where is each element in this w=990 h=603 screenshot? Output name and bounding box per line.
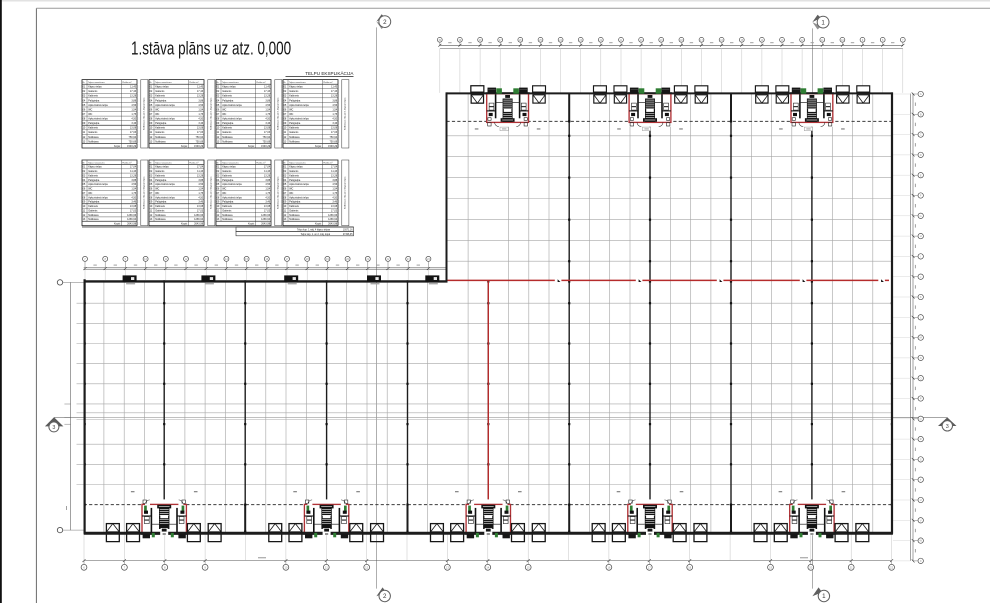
svg-text:Palīgtelpa: Palīgtelpa [222, 122, 234, 125]
svg-text:Kabinets: Kabinets [88, 205, 98, 208]
svg-text:WC: WC [222, 108, 226, 111]
svg-text:C: C [920, 133, 922, 137]
svg-text:Noliktava: Noliktava [222, 140, 233, 143]
svg-text:1,54: 1,54 [131, 188, 136, 191]
svg-text:Kabinets: Kabinets [88, 127, 98, 130]
svg-text:WC: WC [289, 108, 293, 111]
svg-text:Platība m²: Platība m² [122, 161, 131, 164]
svg-text:Kabinets: Kabinets [155, 127, 165, 130]
svg-text:750,64: 750,64 [129, 136, 137, 139]
svg-text:4,50: 4,50 [131, 118, 136, 121]
svg-text:4,56: 4,56 [198, 104, 203, 107]
svg-text:11,43: 11,43 [331, 170, 338, 173]
svg-text:3,88: 3,88 [198, 179, 203, 182]
svg-text:750,69: 750,69 [330, 140, 338, 143]
svg-text:Platība m²: Platība m² [122, 81, 131, 84]
svg-text:Noliktava: Noliktava [289, 218, 300, 221]
svg-text:G: G [920, 214, 922, 218]
svg-text:Noliktava: Noliktava [88, 136, 99, 139]
svg-text:K: K [920, 295, 922, 299]
svg-text:Kabinets: Kabinets [222, 95, 232, 98]
svg-text:Nr: Nr [83, 82, 85, 84]
svg-text:Nr: Nr [284, 162, 286, 164]
svg-text:Noliktava: Noliktava [289, 214, 300, 217]
svg-text:Palīgtelpa: Palīgtelpa [155, 179, 167, 182]
svg-text:Telpas nosaukums: Telpas nosaukums [289, 82, 306, 84]
svg-text:Telpas nosaukums: Telpas nosaukums [155, 162, 172, 164]
svg-text:Apkurināmā telpa: Apkurināmā telpa [289, 104, 309, 107]
svg-text:P: P [920, 397, 922, 401]
svg-text:Kopā:: Kopā: [315, 145, 322, 148]
svg-text:Noliktava: Noliktava [155, 214, 166, 217]
svg-text:17,04: 17,04 [264, 166, 271, 169]
svg-text:4,50: 4,50 [332, 196, 337, 199]
svg-text:4,56: 4,56 [265, 183, 270, 186]
svg-text:11,43: 11,43 [197, 170, 204, 173]
svg-text:17,43: 17,43 [130, 90, 137, 93]
svg-text:Palīgtelpa: Palīgtelpa [88, 99, 100, 102]
svg-text:1,54: 1,54 [198, 108, 203, 111]
svg-text:1266,66: 1266,66 [328, 214, 338, 217]
svg-text:Gaitenis: Gaitenis [155, 210, 165, 213]
svg-text:15: 15 [527, 565, 531, 569]
svg-text:Gaitenis: Gaitenis [155, 131, 165, 134]
svg-text:Noliktava: Noliktava [222, 218, 233, 221]
svg-text:17: 17 [648, 565, 652, 569]
svg-text:4,50: 4,50 [131, 196, 136, 199]
svg-text:E: E [920, 173, 922, 177]
svg-text:Telpas nosaukums: Telpas nosaukums [155, 82, 172, 84]
svg-text:Apkurināmā telpa: Apkurināmā telpa [155, 118, 175, 121]
svg-text:Gaitenis: Gaitenis [88, 170, 98, 173]
svg-text:17,03: 17,03 [264, 210, 271, 213]
svg-text:WC: WC [155, 108, 159, 111]
svg-text:1,75: 1,75 [198, 192, 203, 195]
svg-text:3,46: 3,46 [265, 122, 270, 125]
svg-text:Apkurināmā telpa: Apkurināmā telpa [289, 196, 309, 199]
svg-text:Palīgtelpa: Palīgtelpa [155, 201, 167, 204]
svg-text:Palīgtelpa: Palīgtelpa [155, 122, 167, 125]
svg-text:Platība m²: Platība m² [256, 161, 265, 164]
svg-text:3,46: 3,46 [198, 201, 203, 204]
svg-text:17,03: 17,03 [197, 210, 204, 213]
svg-text:13,28: 13,28 [197, 95, 204, 98]
svg-text:13,28: 13,28 [197, 174, 204, 177]
svg-text:Kabinets: Kabinets [88, 95, 98, 98]
svg-text:3,46: 3,46 [131, 122, 136, 125]
svg-text:S: S [920, 458, 922, 462]
svg-text:Nr: Nr [150, 82, 152, 84]
svg-text:Apkurināmā telpa: Apkurināmā telpa [155, 104, 175, 107]
svg-text:Gaitenis: Gaitenis [289, 210, 299, 213]
svg-text:Kopā:: Kopā: [181, 145, 188, 148]
svg-text:1,75: 1,75 [198, 113, 203, 116]
svg-text:X: X [920, 559, 922, 563]
svg-text:2: 2 [383, 19, 387, 26]
svg-text:A: A [920, 92, 922, 96]
svg-text:Apkurināmā telpa: Apkurināmā telpa [88, 118, 108, 121]
svg-text:17,03: 17,03 [331, 210, 338, 213]
svg-text:13,28: 13,28 [264, 95, 271, 98]
svg-text:Apkurināmā telpa: Apkurināmā telpa [289, 183, 309, 186]
svg-text:3,46: 3,46 [332, 122, 337, 125]
svg-text:750,64: 750,64 [330, 136, 338, 139]
svg-text:3,46: 3,46 [131, 201, 136, 204]
svg-text:11,45: 11,45 [331, 86, 338, 89]
svg-text:H: H [920, 234, 922, 238]
svg-text:Kāpņu telpa: Kāpņu telpa [289, 86, 303, 89]
svg-text:13,08: 13,08 [264, 127, 271, 130]
svg-text:Apkurināmā telpa: Apkurināmā telpa [289, 118, 309, 121]
svg-text:13,08: 13,08 [197, 205, 204, 208]
svg-text:Kāpņu telpa: Kāpņu telpa [222, 86, 236, 89]
svg-text:Gaitenis: Gaitenis [289, 131, 299, 134]
svg-text:V: V [920, 518, 922, 522]
svg-text:14: 14 [486, 565, 490, 569]
svg-text:1593,29: 1593,29 [194, 145, 204, 148]
svg-text:Telpas nosaukums: Telpas nosaukums [222, 82, 239, 84]
svg-text:Gaitenis: Gaitenis [88, 210, 98, 213]
svg-text:Kopā:: Kopā: [114, 223, 121, 226]
svg-text:3,88: 3,88 [131, 99, 136, 102]
svg-text:Kopā:: Kopā: [181, 223, 188, 226]
svg-text:Gaitenis: Gaitenis [222, 210, 232, 213]
svg-text:1,75: 1,75 [265, 113, 270, 116]
svg-text:11,45: 11,45 [264, 86, 271, 89]
svg-text:17,04: 17,04 [130, 166, 137, 169]
svg-text:Kabinets: Kabinets [222, 205, 232, 208]
svg-text:16: 16 [607, 565, 611, 569]
svg-text:17,43: 17,43 [264, 90, 271, 93]
svg-text:Noliktavas ēka pie 1.kāpņu tel: Noliktavas ēka pie 1.kāpņu telpas [209, 97, 212, 130]
svg-text:WC: WC [289, 188, 293, 191]
svg-text:2: 2 [383, 593, 387, 600]
svg-text:19: 19 [769, 565, 773, 569]
svg-text:21: 21 [850, 565, 854, 569]
svg-text:1593,29: 1593,29 [127, 145, 137, 148]
svg-text:3: 3 [52, 425, 55, 431]
svg-text:13,08: 13,08 [331, 205, 338, 208]
svg-text:Noliktavas ēka pie 1.kāpņu tel: Noliktavas ēka pie 1.kāpņu telpas [343, 97, 346, 130]
svg-text:Noliktavas ēka pie 2.kāpņu tel: Noliktavas ēka pie 2.kāpņu telpas [343, 176, 346, 209]
svg-text:Kopā:: Kopā: [315, 223, 322, 226]
svg-text:Nr: Nr [217, 162, 219, 164]
svg-text:11,43: 11,43 [130, 170, 137, 173]
svg-text:1,54: 1,54 [332, 108, 337, 111]
svg-text:Apkurināmā telpa: Apkurināmā telpa [222, 104, 242, 107]
svg-text:Palīgtelpa: Palīgtelpa [88, 179, 100, 182]
svg-text:Noliktava: Noliktava [88, 214, 99, 217]
svg-text:4,56: 4,56 [198, 183, 203, 186]
svg-text:WC: WC [289, 192, 293, 195]
svg-text:4,56: 4,56 [131, 104, 136, 107]
svg-text:Noliktavas ēka pie 2.kāpņu tel: Noliktavas ēka pie 2.kāpņu telpas [209, 176, 212, 209]
svg-text:Noliktavas ēka pie 1.kāpņu tel: Noliktavas ēka pie 1.kāpņu telpas [276, 97, 279, 130]
svg-text:13,28: 13,28 [331, 95, 338, 98]
svg-text:Palīgtelpa: Palīgtelpa [88, 122, 100, 125]
svg-text:Kāpņu telpa: Kāpņu telpa [155, 86, 169, 89]
svg-text:Apkurināmā telpa: Apkurināmā telpa [222, 183, 242, 186]
svg-text:Gaitenis: Gaitenis [289, 90, 299, 93]
svg-text:Kabinets: Kabinets [155, 205, 165, 208]
svg-text:1593,29: 1593,29 [328, 145, 338, 148]
svg-text:Palīgtelpa: Palīgtelpa [289, 179, 301, 182]
svg-text:WC: WC [88, 108, 92, 111]
svg-text:1,75: 1,75 [131, 113, 136, 116]
svg-text:11,43: 11,43 [264, 170, 271, 173]
svg-text:22: 22 [890, 565, 894, 569]
svg-text:Nr: Nr [150, 162, 152, 164]
svg-text:2643,98: 2643,98 [127, 223, 137, 226]
svg-text:3,88: 3,88 [131, 179, 136, 182]
svg-text:Gaitenis: Gaitenis [289, 170, 299, 173]
svg-text:1: 1 [821, 19, 825, 26]
svg-text:17,43: 17,43 [331, 90, 338, 93]
svg-text:Gaitenis: Gaitenis [88, 131, 98, 134]
svg-text:1,75: 1,75 [265, 192, 270, 195]
svg-text:4,56: 4,56 [131, 183, 136, 186]
svg-text:D: D [920, 153, 922, 157]
svg-text:Kāpņu telpa: Kāpņu telpa [88, 166, 102, 169]
svg-text:13,08: 13,08 [331, 127, 338, 130]
svg-text:17,03: 17,03 [130, 210, 137, 213]
svg-text:3,88: 3,88 [265, 179, 270, 182]
svg-text:Kopā:: Kopā: [248, 223, 255, 226]
svg-text:Palīgtelpa: Palīgtelpa [289, 201, 301, 204]
svg-text:13,28: 13,28 [130, 174, 137, 177]
svg-text:4,56: 4,56 [332, 104, 337, 107]
svg-text:1266,64: 1266,64 [328, 218, 338, 221]
svg-text:3,88: 3,88 [332, 179, 337, 182]
svg-text:3: 3 [946, 424, 949, 430]
svg-text:Noliktavas ēka pie 1.kāpņu tel: Noliktavas ēka pie 1.kāpņu telpas [142, 97, 145, 130]
svg-text:1,75: 1,75 [332, 192, 337, 195]
svg-text:17,03: 17,03 [264, 131, 271, 134]
svg-text:11,45: 11,45 [197, 86, 204, 89]
svg-text:17,04: 17,04 [197, 166, 204, 169]
svg-text:Kabinets: Kabinets [222, 174, 232, 177]
svg-text:Gaitenis: Gaitenis [222, 170, 232, 173]
svg-text:1,54: 1,54 [265, 108, 270, 111]
svg-text:3,46: 3,46 [332, 201, 337, 204]
svg-text:1593,29: 1593,29 [261, 145, 271, 148]
svg-text:Apkurināmā telpa: Apkurināmā telpa [222, 196, 242, 199]
svg-text:U: U [920, 498, 922, 502]
svg-text:Kabinets: Kabinets [289, 95, 299, 98]
svg-text:17,03: 17,03 [331, 131, 338, 134]
svg-text:Apkurināmā telpa: Apkurināmā telpa [88, 183, 108, 186]
svg-text:1,54: 1,54 [198, 188, 203, 191]
svg-text:17,43: 17,43 [197, 90, 204, 93]
svg-text:Gaitenis: Gaitenis [222, 90, 232, 93]
svg-text:WC: WC [222, 192, 226, 195]
svg-text:Platība m²: Platība m² [189, 161, 198, 164]
svg-text:Kabinets: Kabinets [289, 205, 299, 208]
svg-text:Apkurināmā telpa: Apkurināmā telpa [155, 183, 175, 186]
svg-text:Palīgtelpa: Palīgtelpa [222, 179, 234, 182]
svg-text:WC: WC [222, 113, 226, 116]
svg-text:O: O [920, 376, 922, 380]
svg-text:1266,66: 1266,66 [261, 214, 271, 217]
svg-text:Noliktava: Noliktava [88, 140, 99, 143]
svg-text:N: N [920, 356, 922, 360]
svg-text:Q: Q [920, 417, 922, 421]
svg-text:1266,64: 1266,64 [194, 218, 204, 221]
svg-text:3,46: 3,46 [198, 122, 203, 125]
svg-text:Palīgtelpa: Palīgtelpa [222, 201, 234, 204]
svg-text:Telpas nosaukums: Telpas nosaukums [222, 162, 239, 164]
svg-text:Gaitenis: Gaitenis [88, 90, 98, 93]
svg-text:Palīgtelpa: Palīgtelpa [289, 122, 301, 125]
svg-text:Telpas nosaukums: Telpas nosaukums [88, 162, 105, 164]
svg-text:Palīgtelpa: Palīgtelpa [155, 99, 167, 102]
svg-text:1266,66: 1266,66 [127, 214, 137, 217]
svg-text:2643,98: 2643,98 [328, 223, 338, 226]
svg-text:Apkurināmā telpa: Apkurināmā telpa [155, 196, 175, 199]
svg-text:Noliktava: Noliktava [222, 136, 233, 139]
svg-text:18: 18 [688, 565, 692, 569]
svg-text:WC: WC [88, 192, 92, 195]
svg-text:Gaitenis: Gaitenis [155, 90, 165, 93]
svg-text:17,03: 17,03 [197, 131, 204, 134]
svg-text:Telpas nosaukums: Telpas nosaukums [289, 162, 306, 164]
svg-text:13,08: 13,08 [264, 205, 271, 208]
svg-text:4,50: 4,50 [265, 196, 270, 199]
svg-text:750,64: 750,64 [196, 136, 204, 139]
svg-text:750,69: 750,69 [196, 140, 204, 143]
svg-text:WC: WC [222, 188, 226, 191]
svg-text:12: 12 [365, 565, 369, 569]
svg-text:1,54: 1,54 [265, 188, 270, 191]
svg-text:27326,05: 27326,05 [343, 234, 353, 236]
svg-text:Apkurināmā telpa: Apkurināmā telpa [88, 196, 108, 199]
svg-text:Nr: Nr [217, 82, 219, 84]
svg-text:11,45: 11,45 [130, 86, 137, 89]
svg-text:Platība m²: Platība m² [189, 81, 198, 84]
svg-text:Telpu kop. 1.māj. 4 kāpņu telp: Telpu kop. 1.māj. 4 kāpņu telpas [297, 228, 331, 231]
svg-text:3,46: 3,46 [265, 201, 270, 204]
svg-text:TELPU EKSPLIKĀCIJA: TELPU EKSPLIKĀCIJA [305, 70, 354, 76]
svg-text:Kabinets: Kabinets [222, 127, 232, 130]
svg-text:Kāpņu telpa: Kāpņu telpa [155, 166, 169, 169]
svg-text:1,75: 1,75 [131, 192, 136, 195]
svg-text:Telpas nosaukums: Telpas nosaukums [88, 82, 105, 84]
svg-text:1266,64: 1266,64 [127, 218, 137, 221]
svg-text:R: R [920, 437, 922, 441]
svg-text:17,03: 17,03 [130, 131, 137, 134]
svg-text:13: 13 [446, 565, 450, 569]
svg-text:Apkurināmā telpa: Apkurināmā telpa [88, 104, 108, 107]
svg-text:750,69: 750,69 [263, 140, 271, 143]
svg-text:Noliktava: Noliktava [155, 218, 166, 221]
svg-text:1266,64: 1266,64 [261, 218, 271, 221]
svg-text:1266,66: 1266,66 [194, 214, 204, 217]
svg-text:10: 10 [284, 565, 288, 569]
svg-text:WC: WC [88, 188, 92, 191]
svg-text:Kāpņu telpa: Kāpņu telpa [289, 166, 303, 169]
svg-text:Platība m²: Platība m² [323, 81, 332, 84]
svg-text:Noliktava: Noliktava [289, 136, 300, 139]
svg-text:4,50: 4,50 [198, 118, 203, 121]
svg-text:Noliktava: Noliktava [155, 136, 166, 139]
svg-text:4,50: 4,50 [332, 118, 337, 121]
svg-text:13,08: 13,08 [197, 127, 204, 130]
svg-text:Palīgtelpa: Palīgtelpa [289, 99, 301, 102]
svg-text:Noliktavas ēka pie 2.kāpņu tel: Noliktavas ēka pie 2.kāpņu telpas [276, 176, 279, 209]
svg-text:WC: WC [155, 192, 159, 195]
svg-text:Kabinets: Kabinets [289, 174, 299, 177]
svg-text:3,88: 3,88 [198, 99, 203, 102]
svg-text:Platība m²: Platība m² [256, 81, 265, 84]
svg-text:Kabinets: Kabinets [88, 174, 98, 177]
svg-text:13,28: 13,28 [130, 95, 137, 98]
svg-text:4,56: 4,56 [332, 183, 337, 186]
svg-text:1,75: 1,75 [332, 113, 337, 116]
svg-text:Kāpņu telpa: Kāpņu telpa [88, 86, 102, 89]
svg-text:13,28: 13,28 [264, 174, 271, 177]
svg-text:4,56: 4,56 [265, 104, 270, 107]
svg-text:1.stāva plāns uz atz. 0,000: 1.stāva plāns uz atz. 0,000 [131, 40, 291, 59]
svg-text:2643,98: 2643,98 [194, 223, 204, 226]
svg-text:M: M [920, 336, 922, 340]
svg-text:17,04: 17,04 [331, 166, 338, 169]
svg-text:Palīgtelpa: Palīgtelpa [88, 201, 100, 204]
svg-text:1: 1 [822, 593, 826, 600]
svg-text:Noliktava: Noliktava [222, 214, 233, 217]
svg-text:11: 11 [325, 565, 328, 569]
svg-text:1,54: 1,54 [332, 188, 337, 191]
svg-text:13,08: 13,08 [130, 205, 137, 208]
svg-text:4,50: 4,50 [198, 196, 203, 199]
svg-text:750,69: 750,69 [129, 140, 137, 143]
svg-text:13,08: 13,08 [130, 127, 137, 130]
svg-text:Apkurināmā telpa: Apkurināmā telpa [222, 118, 242, 121]
svg-text:750,64: 750,64 [263, 136, 271, 139]
svg-text:WC: WC [88, 113, 92, 116]
svg-text:20: 20 [809, 565, 813, 569]
svg-text:Nr: Nr [284, 82, 286, 84]
svg-text:Nr: Nr [83, 162, 85, 164]
svg-text:B: B [920, 112, 922, 116]
svg-text:Noliktava: Noliktava [88, 218, 99, 221]
svg-text:Kabinets: Kabinets [155, 174, 165, 177]
svg-text:Noliktava: Noliktava [289, 140, 300, 143]
svg-text:Kabinets: Kabinets [155, 95, 165, 98]
svg-text:WC: WC [155, 113, 159, 116]
svg-text:Kabinets: Kabinets [289, 127, 299, 130]
svg-text:WC: WC [289, 113, 293, 116]
svg-text:Noliktavas ēka pie 2.kāpņu tel: Noliktavas ēka pie 2.kāpņu telpas [142, 176, 145, 209]
svg-text:Telpu kop. 1. un 2. māj. kopā: Telpu kop. 1. un 2. māj. kopā [301, 233, 331, 236]
svg-text:2643,98: 2643,98 [261, 223, 271, 226]
svg-text:3,88: 3,88 [265, 99, 270, 102]
svg-text:Gaitenis: Gaitenis [222, 131, 232, 134]
svg-text:Palīgtelpa: Palīgtelpa [222, 99, 234, 102]
svg-text:Gaitenis: Gaitenis [155, 170, 165, 173]
svg-text:Kāpņu telpa: Kāpņu telpa [222, 166, 236, 169]
svg-text:3,88: 3,88 [332, 99, 337, 102]
svg-text:13,28: 13,28 [331, 174, 338, 177]
svg-text:Kopā:: Kopā: [114, 145, 121, 148]
svg-text:Kopā:: Kopā: [248, 145, 255, 148]
svg-text:WC: WC [155, 188, 159, 191]
svg-text:Platība m²: Platība m² [323, 161, 332, 164]
svg-text:1,54: 1,54 [131, 108, 136, 111]
svg-text:Noliktava: Noliktava [155, 140, 166, 143]
svg-text:4,50: 4,50 [265, 118, 270, 121]
